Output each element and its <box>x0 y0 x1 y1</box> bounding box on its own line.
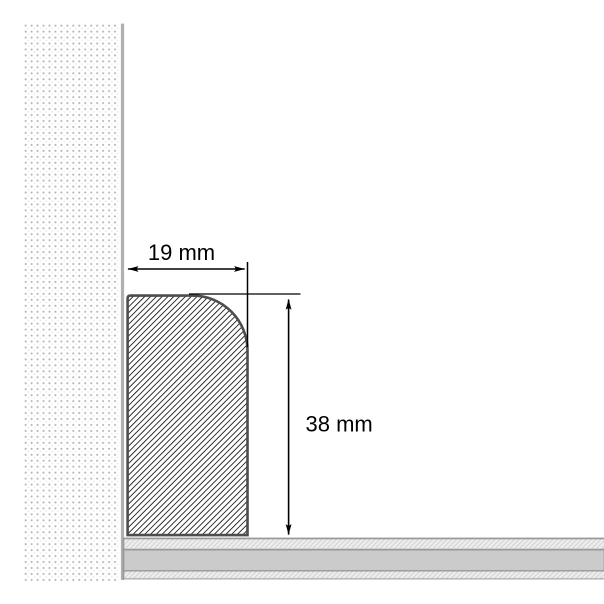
svg-text:38 mm: 38 mm <box>306 412 373 437</box>
svg-text:19 mm: 19 mm <box>148 240 215 265</box>
